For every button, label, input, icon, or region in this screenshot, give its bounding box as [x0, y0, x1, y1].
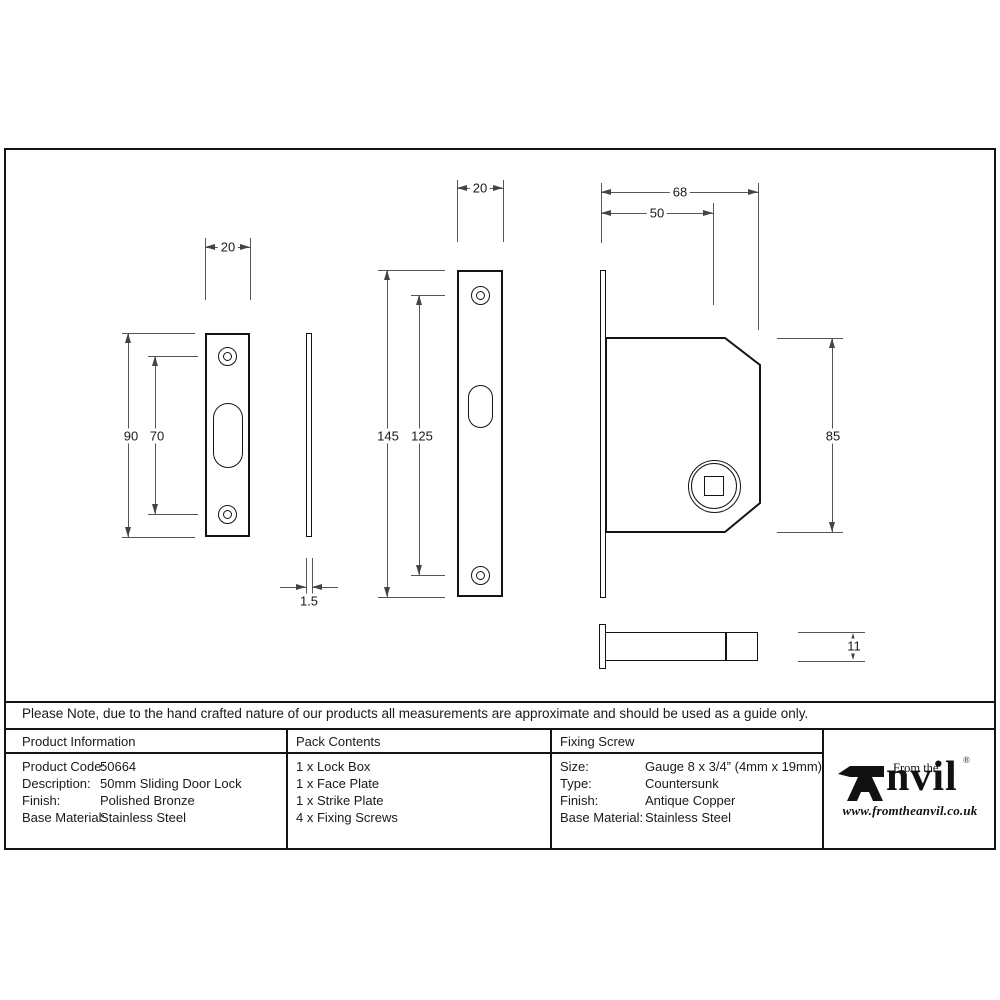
- screw-size-value: Gauge 8 x 3/4” (4mm x 19mm): [645, 758, 822, 775]
- strike-bolt-slot: [213, 403, 243, 468]
- lockbox-spindle-square-hole: [704, 476, 724, 496]
- arrowhead-icon: [125, 333, 131, 343]
- table-col-divider-2: [550, 728, 552, 850]
- note-row-top-border: [4, 701, 996, 703]
- frame-bottom: [4, 848, 996, 850]
- face-bolt-slot: [468, 385, 493, 428]
- face-width-ext-right: [503, 180, 504, 242]
- lockbox-width-ext-right: [758, 183, 759, 330]
- arrowhead-icon: [703, 210, 713, 216]
- lockbox-body-outline: [602, 334, 764, 536]
- arrowhead-icon: [416, 295, 422, 305]
- table-header-bottom-border: [4, 752, 822, 754]
- strike-width-ext-right: [250, 238, 251, 300]
- column-header-pack-contents: Pack Contents: [296, 734, 381, 749]
- brand-website: www.fromtheanvil.co.uk: [830, 803, 990, 819]
- thickness-label: 1.5: [297, 594, 321, 609]
- description-label: Description:: [22, 775, 91, 792]
- frame-left: [4, 148, 6, 850]
- strike-height-ext-bottom: [122, 537, 195, 538]
- strike-screw-hole-bottom-inner: [223, 510, 232, 519]
- arrowhead-icon: [240, 244, 250, 250]
- face-screw-hole-top-inner: [476, 291, 485, 300]
- lockbox-height-label: 85: [823, 429, 843, 444]
- table-col-divider-1: [286, 728, 288, 850]
- column-header-product-information: Product Information: [22, 734, 135, 749]
- finish-label: Finish:: [22, 792, 60, 809]
- table-header-top-border: [4, 728, 996, 730]
- strike-spacing-label: 70: [147, 429, 167, 444]
- arrowhead-icon: [205, 244, 215, 250]
- product-code-label: Product Code:: [22, 758, 105, 775]
- arrowhead-icon: [416, 565, 422, 575]
- arrowhead-icon: [493, 185, 503, 191]
- arrowhead-icon: [384, 587, 390, 597]
- product-code-value: 50664: [100, 758, 136, 775]
- strike-spacing-ext-bottom: [148, 514, 198, 515]
- pack-item: 1 x Strike Plate: [296, 792, 383, 809]
- screw-type-value: Countersunk: [645, 775, 719, 792]
- description-value: 50mm Sliding Door Lock: [100, 775, 242, 792]
- table-col-divider-logo: [822, 728, 824, 850]
- face-spacing-ext-bottom: [411, 575, 445, 576]
- face-height-label: 145: [374, 429, 402, 444]
- lockbox-backset-label: 50: [647, 206, 667, 221]
- bolt-height-ext-bottom: [798, 661, 865, 662]
- screw-finish-value: Antique Copper: [645, 792, 735, 809]
- arrowhead-icon: [457, 185, 467, 191]
- strike-screw-hole-top-inner: [223, 352, 232, 361]
- arrowhead-icon: [312, 584, 322, 590]
- base-material-label: Base Material:: [22, 809, 105, 826]
- frame-top: [4, 148, 996, 150]
- arrowhead-icon: [125, 527, 131, 537]
- anvil-icon: [837, 763, 885, 803]
- arrowhead-icon: [829, 522, 835, 532]
- bolt-height-label: 11: [844, 639, 864, 654]
- base-material-value: Stainless Steel: [100, 809, 186, 826]
- face-screw-hole-bottom-inner: [476, 571, 485, 580]
- arrowhead-icon: [601, 210, 611, 216]
- pack-item: 4 x Fixing Screws: [296, 809, 398, 826]
- strike-height-ext-top: [122, 333, 195, 334]
- arrowhead-icon: [152, 356, 158, 366]
- pack-item: 1 x Lock Box: [296, 758, 370, 775]
- disclaimer-note: Please Note, due to the hand crafted nat…: [22, 706, 808, 721]
- arrowhead-icon: [384, 270, 390, 280]
- brand-tagline: From the: [893, 761, 938, 776]
- column-header-fixing-screw: Fixing Screw: [560, 734, 634, 749]
- screw-base-material-label: Base Material:: [560, 809, 643, 826]
- bolt-divider-line: [725, 633, 727, 660]
- lockbox-backset-ext-right: [713, 203, 714, 305]
- screw-finish-label: Finish:: [560, 792, 598, 809]
- arrowhead-icon: [152, 504, 158, 514]
- arrowhead-icon: [748, 189, 758, 195]
- arrowhead-icon: [601, 189, 611, 195]
- pack-item: 1 x Face Plate: [296, 775, 379, 792]
- arrowhead-icon: [829, 338, 835, 348]
- face-width-label: 20: [470, 181, 490, 196]
- frame-right: [994, 148, 996, 850]
- strike-width-label: 20: [218, 240, 238, 255]
- registered-trademark-icon: ®: [963, 755, 970, 765]
- screw-base-material-value: Stainless Steel: [645, 809, 731, 826]
- screw-type-label: Type:: [560, 775, 592, 792]
- face-plate-outline: [457, 270, 503, 597]
- face-spacing-label: 125: [408, 429, 436, 444]
- diamond-icon: ♦: [950, 765, 954, 774]
- face-height-ext-bottom: [378, 597, 445, 598]
- lockbox-width-label: 68: [670, 185, 690, 200]
- bolt-body-outline: [605, 632, 758, 661]
- strike-plate-side-outline: [306, 333, 312, 537]
- strike-height-label: 90: [121, 429, 141, 444]
- finish-value: Polished Bronze: [100, 792, 195, 809]
- thickness-ext-left: [306, 558, 307, 595]
- spec-sheet: 20 90 70 1.5 20 145 125: [0, 0, 1000, 1000]
- screw-size-label: Size:: [560, 758, 589, 775]
- arrowhead-icon: [296, 584, 306, 590]
- lockbox-height-ext-bottom: [777, 532, 843, 533]
